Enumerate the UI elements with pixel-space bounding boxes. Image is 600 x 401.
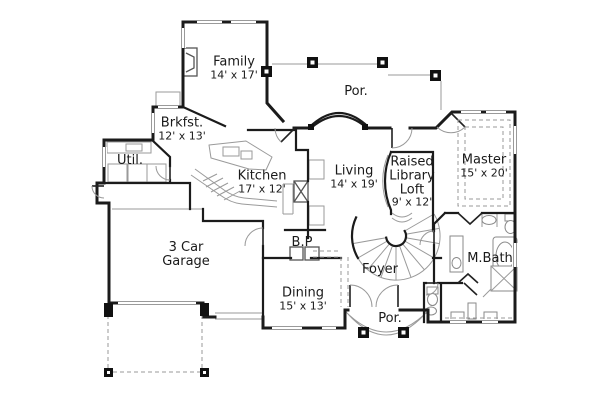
family-fireplace (183, 48, 197, 76)
floor-plan-drawing (0, 0, 600, 401)
spiral-staircase (352, 214, 440, 280)
master-tray-ceiling (458, 120, 510, 206)
living-bow-window (311, 113, 367, 128)
driveway-apron (108, 308, 202, 372)
fixtures (183, 48, 517, 320)
front-double-door (350, 285, 398, 307)
dining-cased-opening (341, 257, 348, 307)
floor-plan-canvas: Family14' x 17'Por.Brkfst.12' x 13'Util.… (0, 0, 600, 401)
toilet (482, 216, 496, 225)
garage-door-opening (118, 300, 196, 306)
